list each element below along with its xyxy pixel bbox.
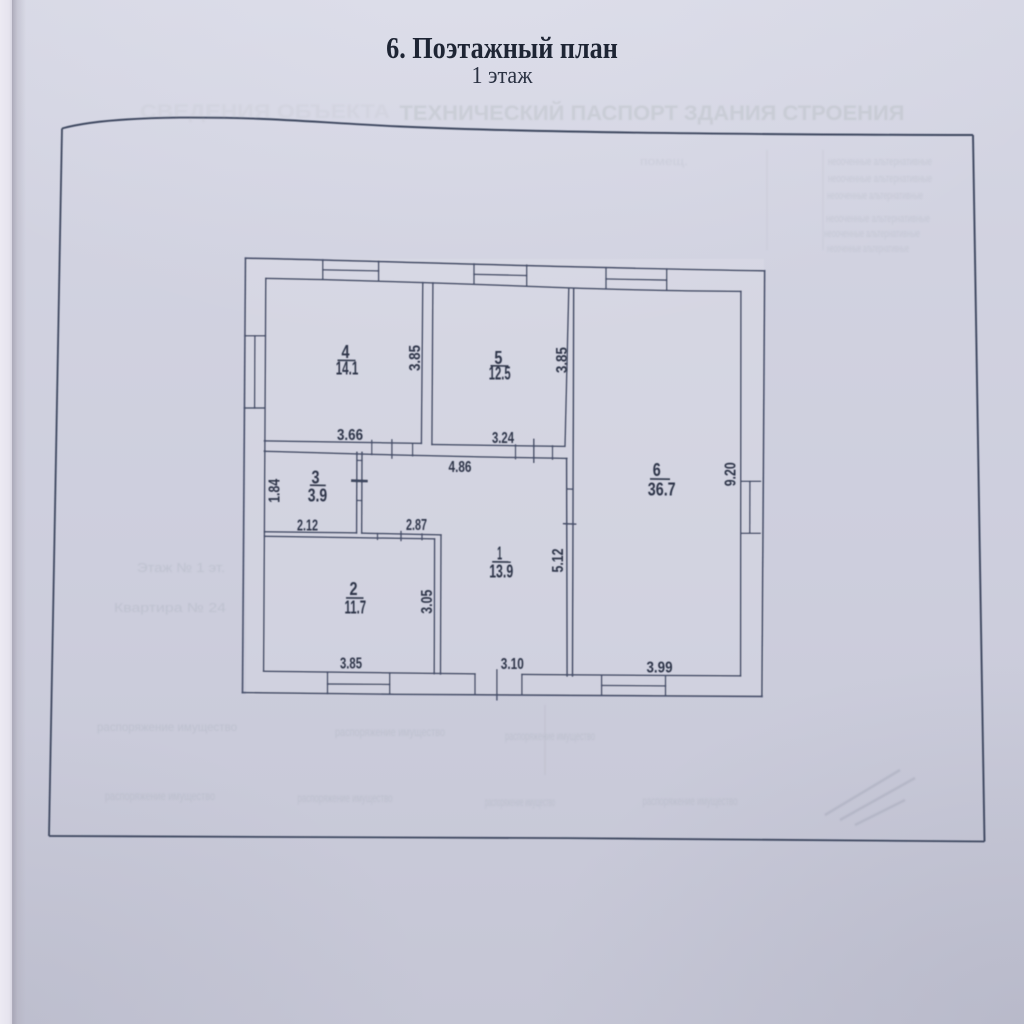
svg-text:помещ.: помещ. bbox=[640, 156, 688, 168]
svg-text:неооченные альтернативные: неооченные альтернативные bbox=[826, 213, 930, 225]
svg-text:3.85: 3.85 bbox=[407, 345, 424, 371]
svg-text:распоряжение имущество: распоряжение имущество bbox=[298, 791, 393, 805]
svg-text:распоряжение имущество: распоряжение имущество bbox=[97, 720, 237, 734]
svg-text:Этаж № 1 эт.: Этаж № 1 эт. bbox=[137, 560, 225, 575]
svg-text:3.85: 3.85 bbox=[340, 656, 362, 673]
svg-text:5.12: 5.12 bbox=[550, 548, 567, 572]
svg-text:36.7: 36.7 bbox=[648, 479, 676, 499]
svg-text:распоряжение имущество: распоряжение имущество bbox=[643, 794, 738, 808]
svg-text:11.7: 11.7 bbox=[345, 598, 367, 618]
svg-text:14.1: 14.1 bbox=[336, 359, 359, 379]
svg-text:распоряжение имущество: распоряжение имущество bbox=[505, 729, 595, 743]
svg-text:распоряжение имущество: распоряжение имущество bbox=[105, 789, 215, 803]
svg-text:Квартира № 24: Квартира № 24 bbox=[114, 600, 226, 615]
svg-text:3.66: 3.66 bbox=[337, 427, 363, 444]
svg-text:2: 2 bbox=[350, 579, 358, 599]
svg-text:распоряжение имущество: распоряжение имущество bbox=[485, 795, 555, 809]
svg-text:неооченные альтернативные: неооченные альтернативные bbox=[827, 190, 923, 202]
svg-text:9.20: 9.20 bbox=[722, 462, 739, 486]
svg-text:6: 6 bbox=[653, 460, 661, 480]
svg-text:неооченные альтернативные: неооченные альтернативные bbox=[824, 228, 920, 240]
svg-text:3.85: 3.85 bbox=[554, 347, 571, 373]
svg-text:13.9: 13.9 bbox=[489, 562, 513, 582]
svg-text:1.84: 1.84 bbox=[267, 479, 284, 503]
svg-text:неооченные альтернативные: неооченные альтернативные bbox=[827, 243, 909, 255]
svg-text:2.87: 2.87 bbox=[406, 517, 427, 534]
svg-text:3.99: 3.99 bbox=[647, 659, 673, 676]
svg-text:4.86: 4.86 bbox=[449, 459, 472, 476]
svg-text:2.12: 2.12 bbox=[297, 517, 318, 534]
svg-text:12.5: 12.5 bbox=[489, 364, 511, 384]
svg-text:3.24: 3.24 bbox=[492, 430, 514, 447]
svg-text:3.05: 3.05 bbox=[419, 590, 436, 614]
svg-text:неооченные альтернативные: неооченные альтернативные bbox=[828, 173, 932, 185]
svg-text:3.9: 3.9 bbox=[308, 485, 327, 505]
svg-text:3.10: 3.10 bbox=[501, 656, 524, 673]
svg-text:ТЕХНИЧЕСКИЙ ПАСПОРТ ЗДАНИЯ СТР: ТЕХНИЧЕСКИЙ ПАСПОРТ ЗДАНИЯ СТРОЕНИЯ bbox=[400, 101, 905, 125]
svg-text:СВЕДЕНИЯ ОБЪЕКТА: СВЕДЕНИЯ ОБЪЕКТА bbox=[140, 102, 390, 123]
svg-text:распоряжение имущество: распоряжение имущество bbox=[335, 725, 445, 739]
svg-text:неооченные альтернативные: неооченные альтернативные bbox=[828, 156, 932, 168]
svg-text:1: 1 bbox=[497, 544, 502, 564]
